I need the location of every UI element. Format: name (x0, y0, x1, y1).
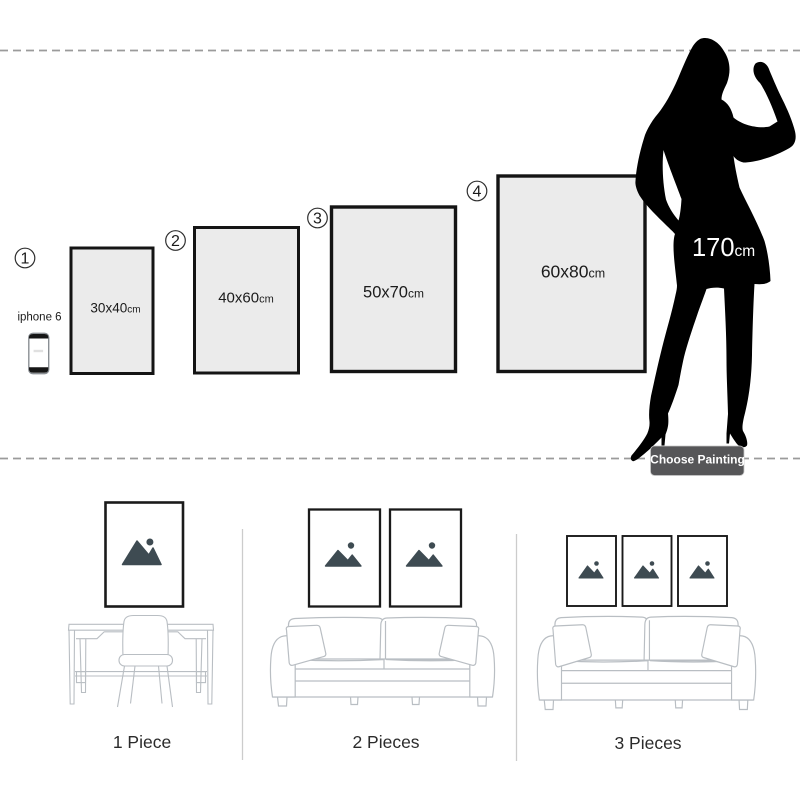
svg-text:50x70cm: 50x70cm (363, 284, 424, 302)
svg-text:Choose Painting: Choose Painting (650, 453, 745, 467)
svg-text:4: 4 (473, 184, 482, 201)
svg-text:2: 2 (171, 233, 180, 250)
svg-text:3: 3 (313, 211, 322, 228)
svg-text:1 Piece: 1 Piece (113, 732, 171, 752)
svg-text:1: 1 (21, 251, 30, 268)
svg-text:3 Pieces: 3 Pieces (614, 733, 681, 753)
svg-text:2 Pieces: 2 Pieces (352, 732, 419, 752)
svg-text:iphone 6: iphone 6 (17, 312, 61, 324)
